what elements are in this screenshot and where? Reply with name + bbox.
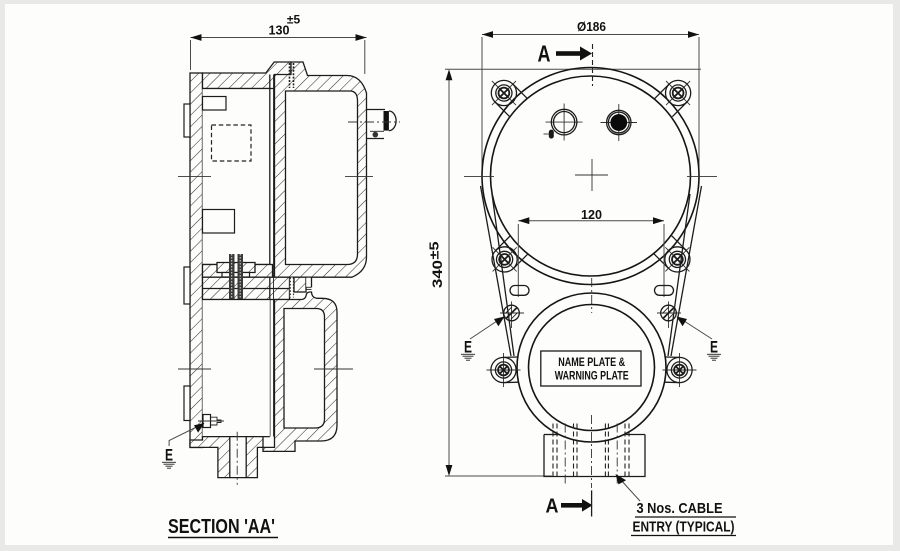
svg-text:WARNING PLATE: WARNING PLATE [555,371,629,383]
svg-text:NAME PLATE &: NAME PLATE & [558,357,625,369]
svg-text:3 Nos. CABLE: 3 Nos. CABLE [637,500,723,517]
svg-text:A: A [538,41,551,67]
svg-text:E: E [710,339,718,357]
svg-text:ENTRY (TYPICAL): ENTRY (TYPICAL) [633,519,735,536]
svg-text:E: E [165,447,173,465]
svg-text:130: 130 [269,23,290,38]
svg-text:120: 120 [581,207,602,222]
svg-text:E: E [464,339,472,357]
svg-text:A: A [546,496,559,518]
svg-text:Ø186: Ø186 [577,20,606,34]
svg-text:SECTION 'AA': SECTION 'AA' [168,516,275,538]
